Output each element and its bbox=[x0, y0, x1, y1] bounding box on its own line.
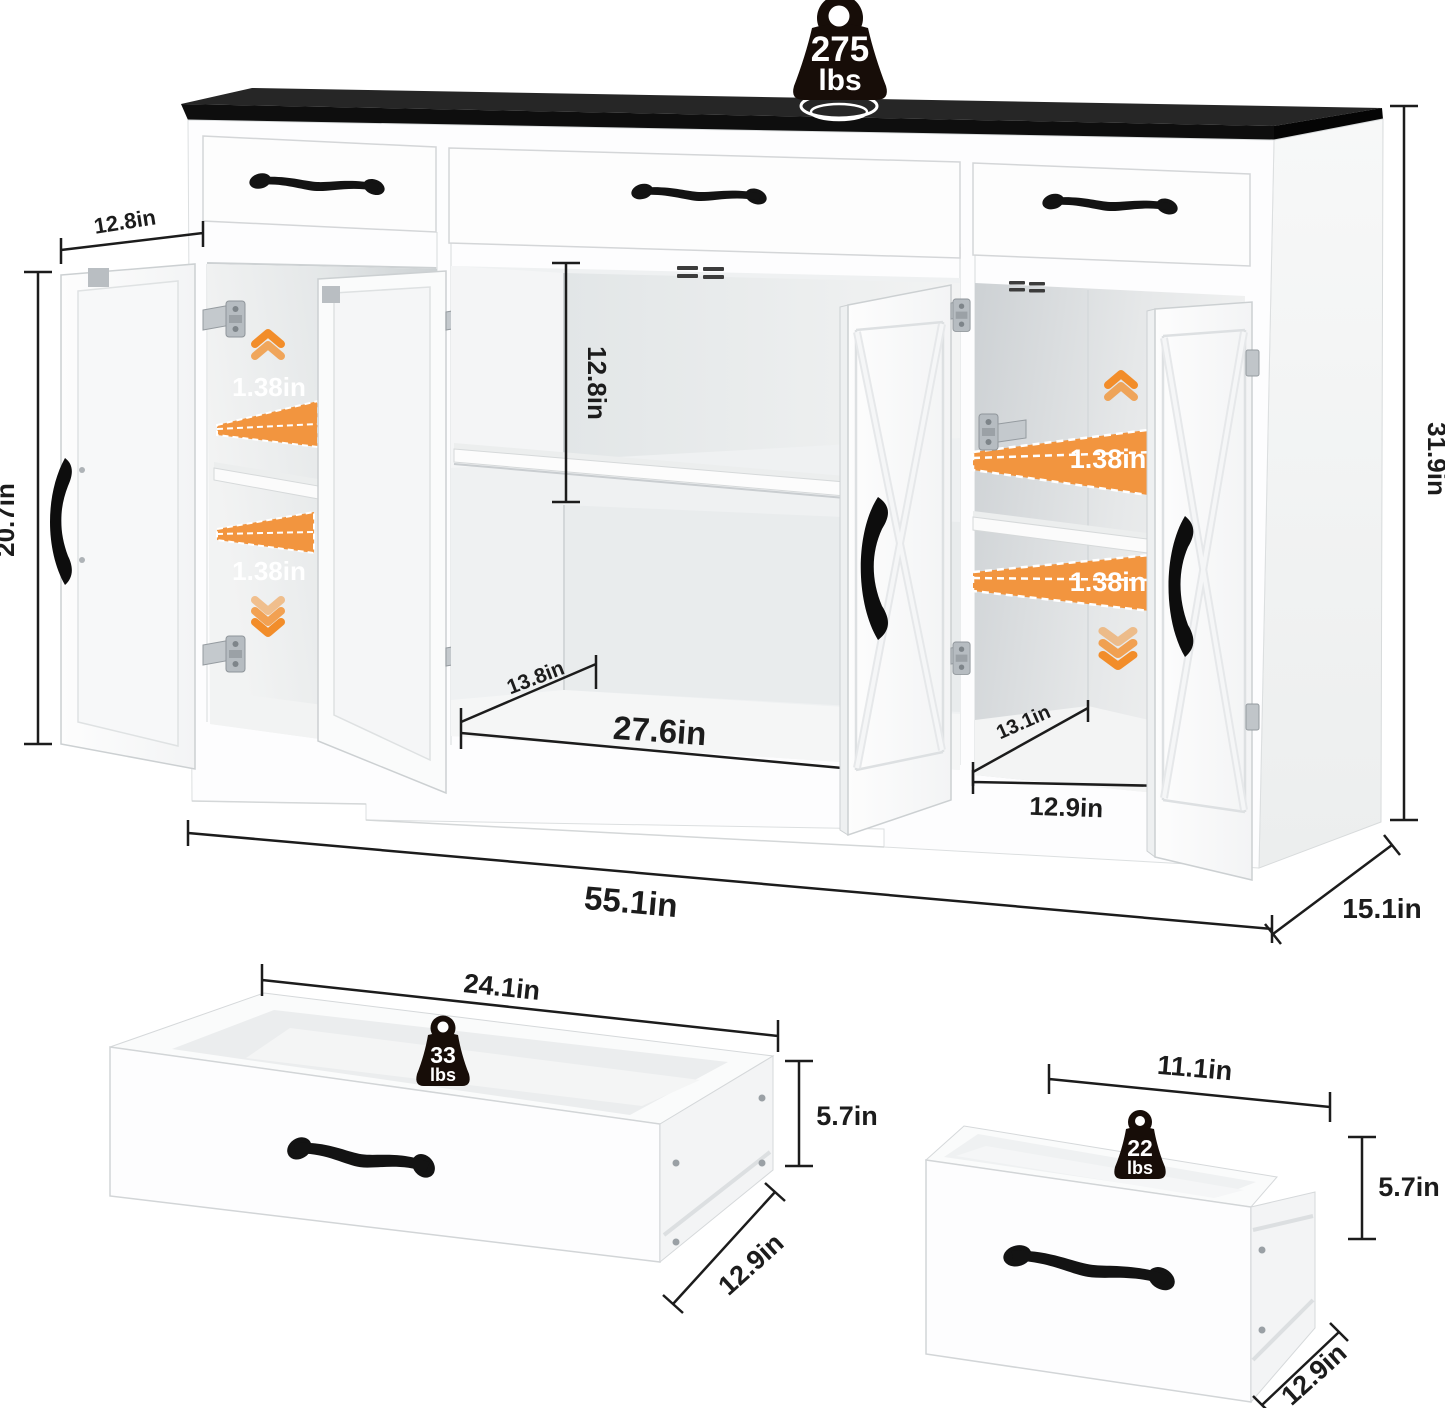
svg-text:1.38in: 1.38in bbox=[232, 372, 306, 402]
svg-text:5.7in: 5.7in bbox=[816, 1101, 878, 1131]
svg-text:1.38in: 1.38in bbox=[1070, 567, 1147, 597]
svg-text:15.1in: 15.1in bbox=[1342, 893, 1421, 924]
svg-text:lbs: lbs bbox=[1127, 1158, 1153, 1178]
svg-text:27.6in: 27.6in bbox=[612, 709, 708, 752]
svg-text:12.8in: 12.8in bbox=[582, 346, 612, 420]
svg-text:1.38in: 1.38in bbox=[1070, 444, 1147, 474]
svg-text:lbs: lbs bbox=[430, 1065, 456, 1085]
svg-text:5.7in: 5.7in bbox=[1378, 1172, 1440, 1202]
svg-text:20.7in: 20.7in bbox=[0, 483, 20, 557]
svg-text:lbs: lbs bbox=[818, 64, 861, 97]
svg-text:12.9in: 12.9in bbox=[1029, 791, 1104, 824]
svg-text:31.9in: 31.9in bbox=[1422, 422, 1445, 496]
svg-text:1.38in: 1.38in bbox=[232, 556, 306, 586]
